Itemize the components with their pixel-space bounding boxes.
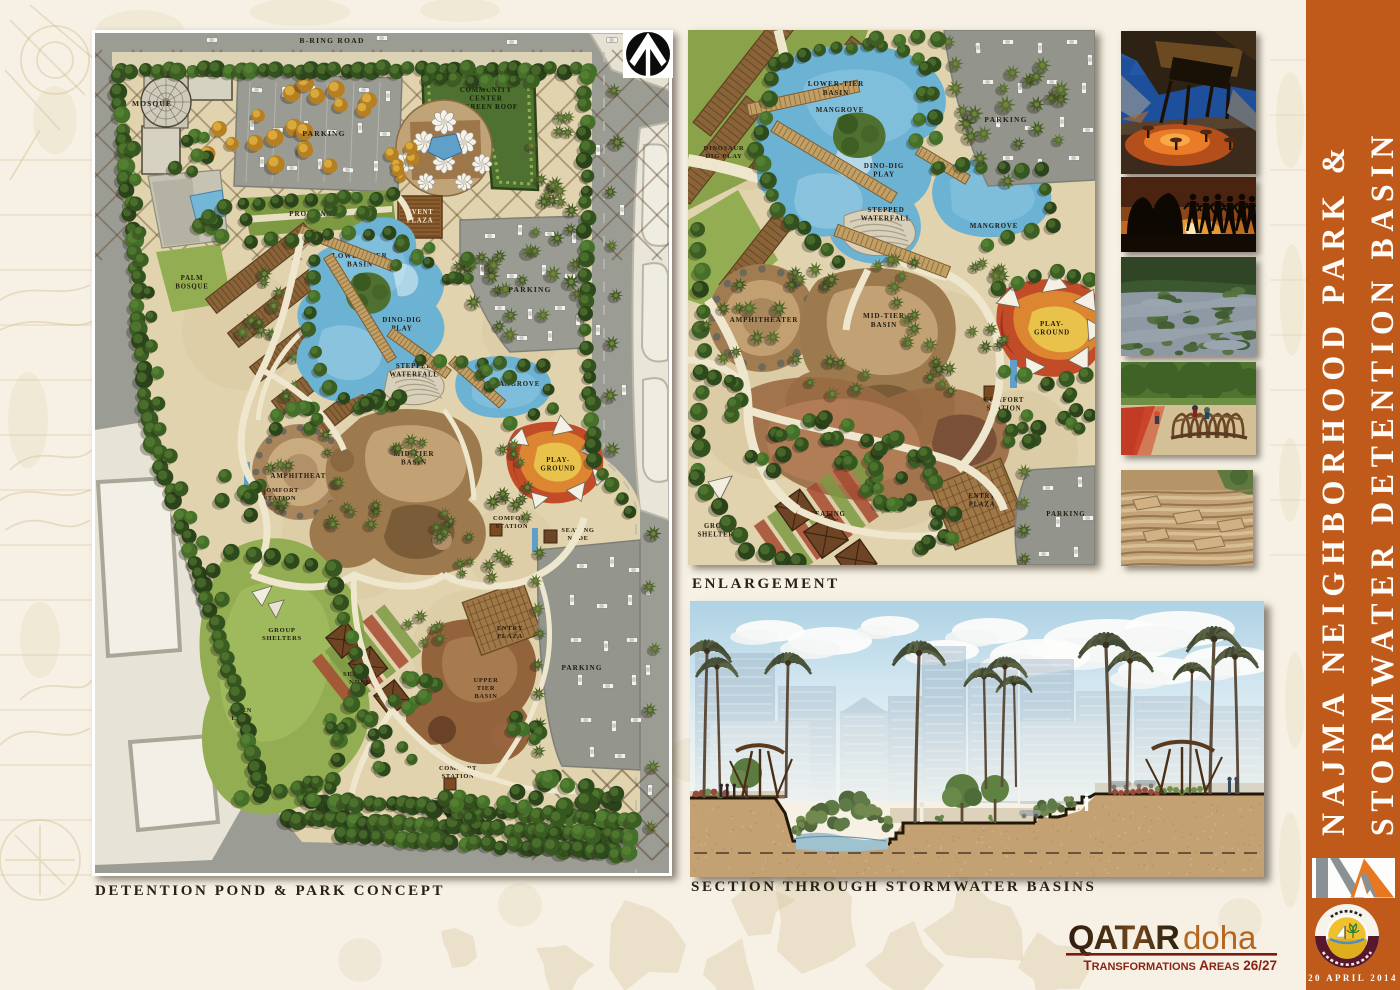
svg-text:BASIN: BASIN: [871, 321, 897, 329]
svg-text:PARKING: PARKING: [984, 115, 1027, 124]
svg-text:CENTER: CENTER: [469, 95, 502, 102]
svg-text:MOSQUE: MOSQUE: [132, 99, 172, 108]
svg-text:SHELTERS: SHELTERS: [262, 635, 302, 642]
svg-text:BOSQUE: BOSQUE: [175, 283, 208, 290]
svg-text:GROUP: GROUP: [268, 627, 295, 634]
svg-text:UPPER: UPPER: [474, 677, 499, 684]
svg-text:STORMWATER DETENTION BASIN: STORMWATER DETENTION BASIN: [1365, 129, 1400, 836]
svg-text:TRANSFORMATIONS AREAS 26/27: TRANSFORMATIONS AREAS 26/27: [1083, 958, 1277, 973]
svg-text:DINO-DIG: DINO-DIG: [864, 162, 904, 170]
svg-text:AMPHITHEATER: AMPHITHEATER: [730, 316, 799, 324]
svg-text:WATERFALL: WATERFALL: [861, 215, 912, 223]
svg-text:QATAR: QATAR: [1068, 919, 1179, 957]
svg-text:MANGROVE: MANGROVE: [816, 107, 864, 114]
svg-text:B-RING ROAD: B-RING ROAD: [299, 36, 364, 45]
svg-text:ENTRY: ENTRY: [497, 625, 523, 632]
svg-text:COMFORT: COMFORT: [984, 397, 1024, 404]
svg-text:doha: doha: [1183, 919, 1257, 956]
svg-text:GROUND: GROUND: [540, 465, 575, 472]
svg-text:DINOSAUR: DINOSAUR: [704, 145, 745, 152]
svg-text:DINO-DIG: DINO-DIG: [382, 317, 421, 324]
svg-text:BASIN: BASIN: [823, 89, 849, 97]
svg-text:PARKING: PARKING: [1046, 510, 1086, 518]
svg-text:COMFORT: COMFORT: [261, 487, 299, 494]
svg-text:PARKING: PARKING: [508, 285, 551, 294]
svg-text:PLAZA: PLAZA: [497, 633, 523, 640]
svg-text:PLAY-: PLAY-: [1040, 320, 1064, 328]
svg-text:WATERFALL: WATERFALL: [389, 371, 438, 378]
svg-text:DIG PLAY: DIG PLAY: [705, 153, 742, 160]
svg-text:GROUND: GROUND: [1034, 329, 1070, 337]
svg-text:PLAZA: PLAZA: [969, 501, 996, 508]
svg-text:STEPPED: STEPPED: [867, 206, 904, 214]
svg-text:PLAY-: PLAY-: [546, 457, 570, 464]
svg-text:BASIN: BASIN: [474, 693, 497, 700]
svg-text:LOWER-TIER: LOWER-TIER: [808, 80, 865, 88]
svg-text:MID-TIER: MID-TIER: [863, 312, 905, 320]
svg-text:PALM: PALM: [181, 275, 204, 282]
svg-text:MANGROVE: MANGROVE: [970, 223, 1018, 230]
svg-text:PLAY: PLAY: [873, 171, 895, 179]
svg-text:NAJMA NEIGHBORHOOD PARK &: NAJMA NEIGHBORHOOD PARK &: [1316, 141, 1352, 836]
svg-text:20 APRIL 2014: 20 APRIL 2014: [1308, 973, 1398, 983]
svg-text:PARKING: PARKING: [561, 664, 602, 672]
svg-text:TIER: TIER: [477, 685, 495, 692]
svg-text:PARKING: PARKING: [302, 129, 345, 138]
